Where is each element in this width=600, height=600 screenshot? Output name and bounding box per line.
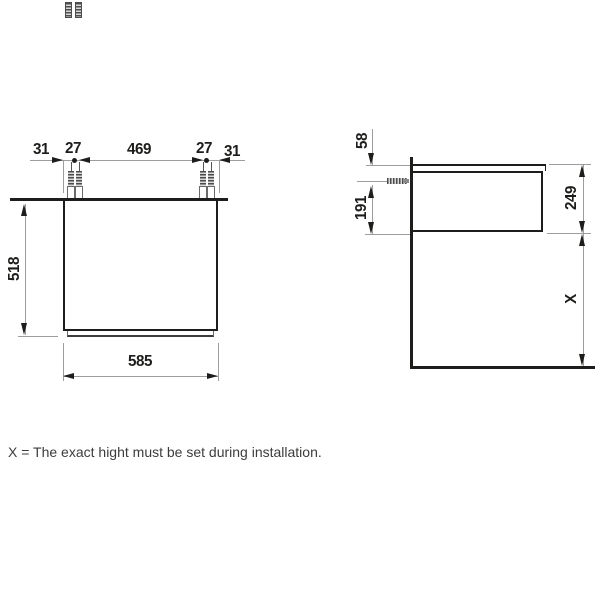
installation-drawing: 31 27 469 27 31 <box>0 0 600 600</box>
center-mark-icon <box>204 158 209 163</box>
arrow-down-icon <box>368 153 374 165</box>
arrow-right-icon <box>52 157 63 163</box>
hanger-bolt-icon <box>75 2 82 18</box>
arrow-up-icon <box>579 165 585 177</box>
arrow-left-icon <box>219 157 230 163</box>
cabinet-front <box>63 201 218 331</box>
hanger-bolt-icon <box>65 2 72 18</box>
arrow-right-icon <box>207 373 218 379</box>
dim-label-518: 518 <box>6 257 24 281</box>
mounting-screw-icon <box>76 171 82 187</box>
extension-line <box>63 160 64 193</box>
dimension-line <box>25 204 26 335</box>
extension-line <box>366 165 410 166</box>
dimension-line <box>63 376 218 377</box>
screw-collar-icon <box>404 179 409 183</box>
dim-label-58: 58 <box>354 133 372 149</box>
cabinet-side <box>413 171 543 232</box>
arrow-left-icon <box>63 373 74 379</box>
arrow-up-icon <box>579 234 585 246</box>
center-mark-icon <box>72 158 77 163</box>
arrow-down-icon <box>579 354 585 366</box>
dim-label-27-right: 27 <box>196 140 212 158</box>
arrow-down-icon <box>579 221 585 233</box>
mounting-screw-icon <box>200 171 206 187</box>
caption-text: X = The exact hight must be set during i… <box>8 444 322 460</box>
dim-label-249: 249 <box>563 186 581 210</box>
arrow-right-icon <box>192 157 203 163</box>
mounting-screw-icon <box>208 171 214 187</box>
dim-label-x: X <box>563 294 581 304</box>
extension-line <box>218 343 219 381</box>
mounting-screw-icon <box>68 171 74 187</box>
extension-line <box>219 160 220 193</box>
dim-label-585: 585 <box>128 353 152 371</box>
plinth-strip <box>67 331 214 337</box>
screw-axis-line <box>357 181 388 182</box>
dim-label-31-left: 31 <box>33 141 49 159</box>
arrow-up-icon <box>21 204 27 216</box>
extension-line <box>365 234 410 235</box>
arrow-down-icon <box>368 222 374 234</box>
countertop-side-line <box>413 164 546 166</box>
arrow-down-icon <box>21 323 27 335</box>
dim-label-191: 191 <box>353 196 371 220</box>
dimension-line <box>583 233 584 366</box>
dim-label-469: 469 <box>127 141 151 159</box>
arrow-left-icon <box>79 157 90 163</box>
floor-line <box>410 366 595 369</box>
dim-label-27-left: 27 <box>65 140 81 158</box>
countertop-edge-tick <box>545 166 546 171</box>
extension-line <box>18 336 58 337</box>
